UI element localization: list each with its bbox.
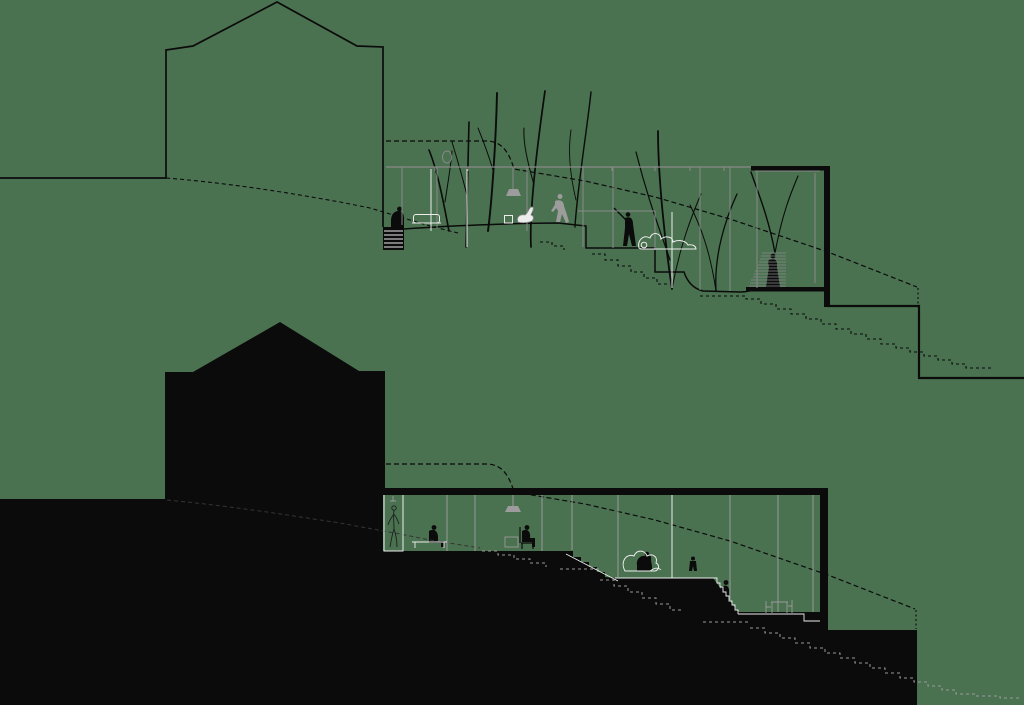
seated-entry-figure-head (397, 207, 402, 212)
architectural-sections-page (0, 0, 1024, 705)
walking-figure-head (558, 194, 563, 199)
chair-figure-head (525, 525, 530, 530)
bench-figure-head (432, 525, 437, 530)
pavilion-roof-bar (751, 166, 830, 171)
roof-slab (383, 488, 828, 495)
gardener-figure-head (626, 212, 631, 217)
child-figure-head (691, 557, 695, 561)
section-drawings-canvas (0, 0, 1024, 705)
pavilion-wall-bar (824, 166, 830, 307)
right-wall (820, 495, 828, 630)
pavilion-floor-bar (746, 287, 830, 292)
descending-figure-head (724, 580, 729, 585)
